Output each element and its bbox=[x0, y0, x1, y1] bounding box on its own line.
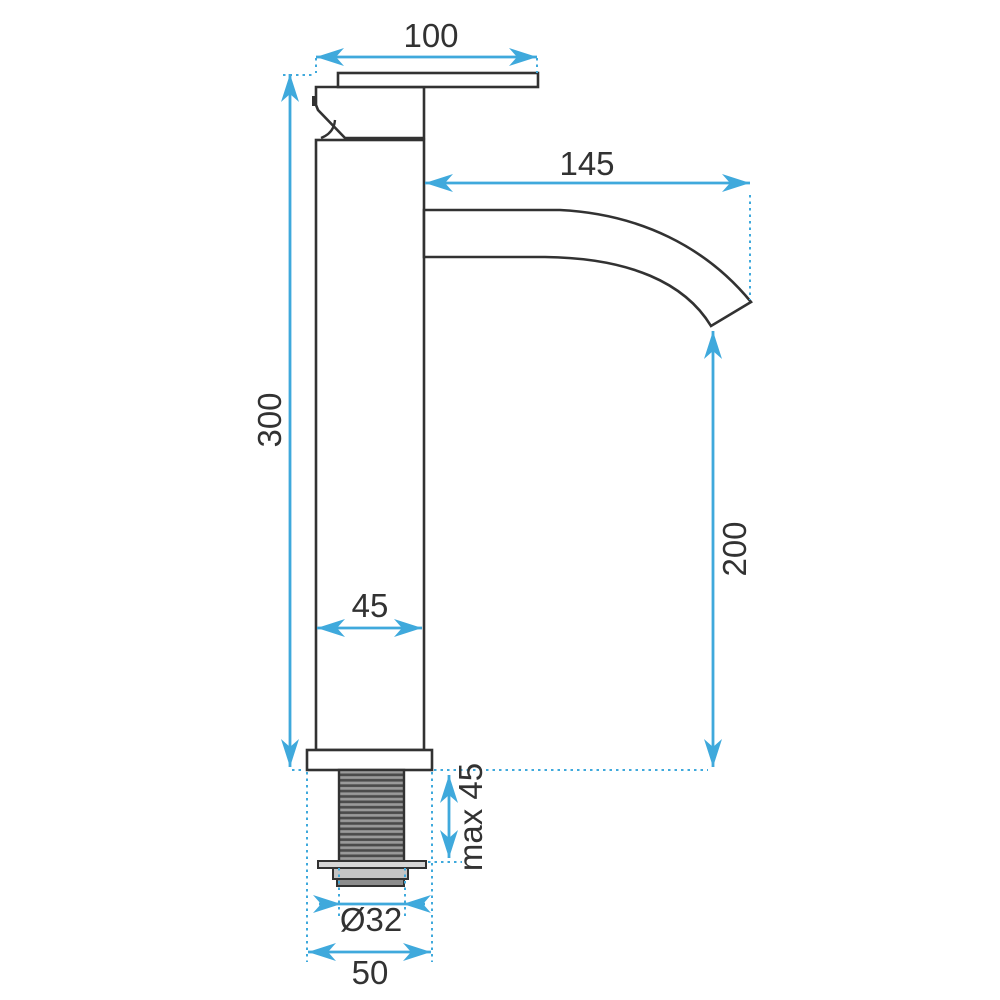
drawing-canvas: 100 145 300 45 200 max 45 Ø32 bbox=[0, 0, 1000, 1000]
faucet-body bbox=[316, 140, 424, 750]
dimension-spout-outlet-height: 200 bbox=[434, 331, 753, 770]
mounting-nut-lower bbox=[337, 879, 404, 886]
faucet-base-flange bbox=[307, 750, 432, 770]
dimension-mounting-depth: max 45 bbox=[428, 763, 489, 871]
dimension-label-base-width: 50 bbox=[352, 954, 389, 991]
mounting-nut-upper bbox=[333, 868, 408, 879]
dimension-handle-plate-width: 100 bbox=[316, 17, 537, 73]
faucet-lever-plate bbox=[338, 73, 538, 87]
faucet-outline bbox=[307, 73, 751, 886]
dimension-label-spout-outlet-height: 200 bbox=[716, 521, 753, 576]
dimension-body-height: 300 bbox=[251, 74, 314, 770]
mounting-thread bbox=[339, 770, 404, 862]
dimension-label-thread-diameter: Ø32 bbox=[340, 901, 402, 938]
dimension-label-body-height: 300 bbox=[251, 392, 288, 447]
washer-plate bbox=[318, 861, 426, 868]
dimension-label-handle-plate-width: 100 bbox=[403, 17, 458, 54]
arrowhead-icon bbox=[403, 895, 431, 913]
arrowhead-icon bbox=[313, 895, 341, 913]
faucet-technical-drawing: 100 145 300 45 200 max 45 Ø32 bbox=[0, 0, 1000, 1000]
dimension-label-mounting-depth: max 45 bbox=[452, 763, 489, 871]
faucet-spout bbox=[424, 210, 751, 326]
lever-pivot-tick-icon bbox=[312, 96, 317, 106]
dimension-label-spout-reach: 145 bbox=[559, 145, 614, 182]
dimension-label-body-width: 45 bbox=[352, 587, 389, 624]
